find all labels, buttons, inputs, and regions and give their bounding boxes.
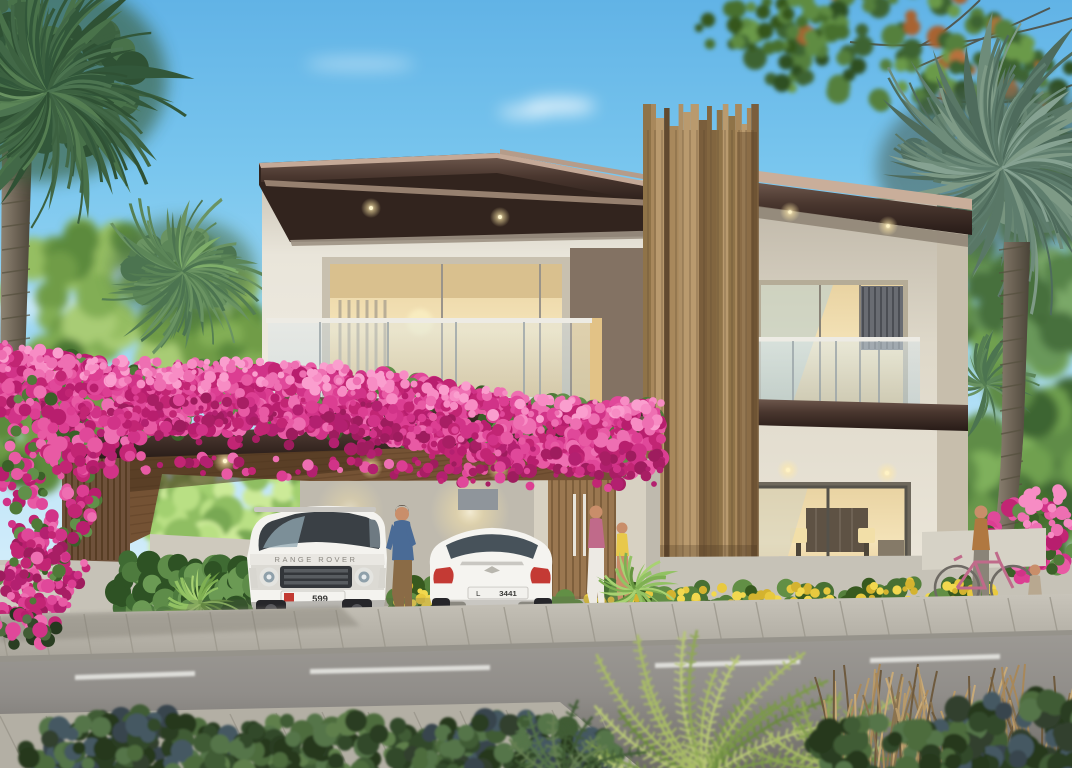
svg-text:L: L	[476, 589, 480, 598]
svg-text:3441: 3441	[499, 589, 518, 598]
svg-text:RANGE ROVER: RANGE ROVER	[275, 555, 358, 564]
